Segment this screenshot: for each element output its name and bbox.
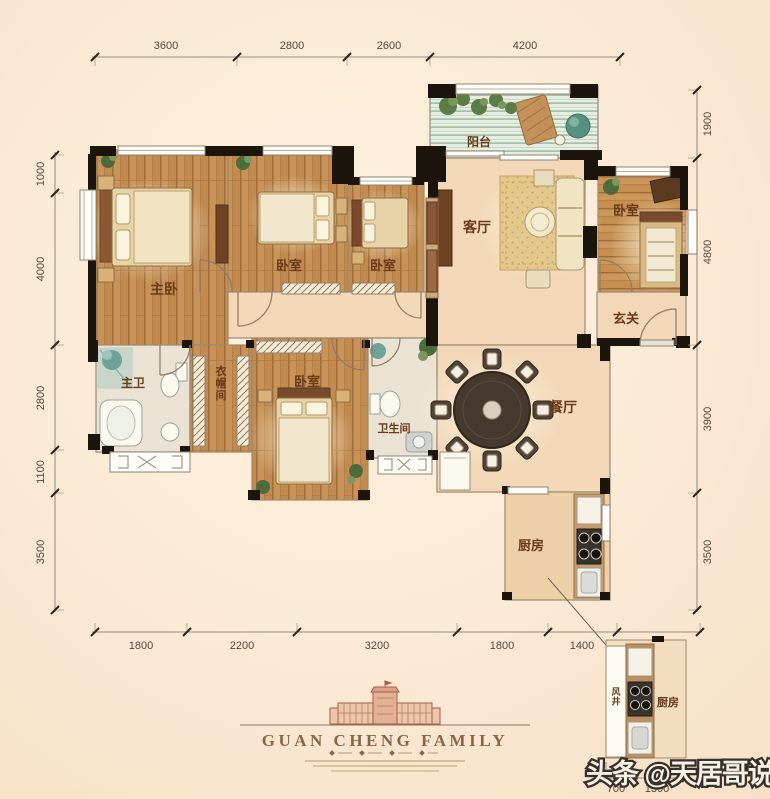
- tv-cabinet: [438, 190, 452, 266]
- dim-right-0: 1900: [702, 112, 714, 136]
- entry-threshold: [640, 340, 674, 346]
- dim-bottom-4: 1400: [570, 640, 594, 652]
- ottoman: [526, 270, 550, 288]
- bay-window: [80, 190, 96, 260]
- dresser: [216, 205, 228, 263]
- floor-plan-page: 主卧 卧室 卧室 卧室 卧室 客厅 餐厅 厨房 阳台 主卫 卫生间 玄关 衣帽间…: [0, 0, 770, 799]
- sofa: [556, 178, 584, 270]
- kitchen-threshold: [508, 487, 548, 494]
- dim-bottom-1: 2200: [230, 640, 254, 652]
- label-living: 客厅: [462, 219, 491, 235]
- window: [602, 505, 610, 541]
- label-master-bedroom: 主卧: [150, 281, 178, 297]
- dim-top-2: 2600: [377, 40, 401, 52]
- dim-bottom-2: 3200: [365, 640, 389, 652]
- label-bedroom2: 卧室: [276, 258, 302, 273]
- label-bathroom: 卫生间: [378, 421, 411, 435]
- dim-top-3: 4200: [513, 40, 537, 52]
- wardrobe: [256, 341, 322, 353]
- toilet: [161, 373, 179, 397]
- closet-shelf: [237, 356, 249, 446]
- dim-top-0: 3600: [154, 40, 178, 52]
- sink: [161, 423, 179, 441]
- bay-window: [688, 210, 697, 254]
- label-foyer: 玄关: [613, 311, 639, 326]
- bed-headboard: [352, 200, 362, 246]
- dim-top-1: 2800: [280, 40, 304, 52]
- coffee-table: [525, 207, 555, 237]
- toilet: [380, 391, 400, 417]
- brand-name: GUAN CHENG FAMILY: [262, 731, 509, 750]
- watermark-text: 头条 @天居哥说房: [586, 759, 770, 789]
- closet-shelf: [193, 356, 205, 446]
- label-kitchen: 厨房: [518, 538, 544, 553]
- label-bedroom-right: 卧室: [613, 203, 639, 218]
- balcony-slider: [500, 155, 558, 160]
- dim-right-2: 3900: [702, 407, 714, 431]
- planter: [566, 114, 590, 138]
- inset-label-air-shaft: 风井: [611, 687, 620, 707]
- label-balcony: 阳台: [467, 134, 491, 149]
- dim-left-2: 2800: [35, 386, 47, 410]
- building-illustration: [330, 681, 440, 724]
- window-column: [426, 198, 438, 298]
- floor-plan-canvas: 主卧 卧室 卧室 卧室 卧室 客厅 餐厅 厨房 阳台 主卫 卫生间 玄关 衣帽间…: [0, 0, 770, 799]
- dim-bottom-3: 1800: [490, 640, 514, 652]
- foyer-floor: [597, 292, 686, 345]
- label-bedroom4: 卧室: [294, 374, 320, 389]
- bed-headboard: [278, 388, 330, 398]
- dim-left-0: 1000: [35, 162, 47, 186]
- inset-label-kitchen: 厨房: [657, 695, 679, 709]
- label-bedroom3: 卧室: [370, 258, 396, 273]
- dim-bottom-0: 1800: [129, 640, 153, 652]
- brand-tagline-decor: [305, 750, 465, 772]
- dim-left-3: 1100: [35, 460, 47, 484]
- bed-headboard: [640, 212, 682, 222]
- dim-left-4: 3500: [35, 540, 47, 564]
- footer-logo: GUAN CHENG FAMILY: [240, 681, 530, 772]
- corridor-floor: [228, 292, 437, 338]
- balcony-slider: [446, 151, 504, 156]
- bed-headboard: [100, 190, 112, 262]
- dim-right-3: 3500: [702, 540, 714, 564]
- bedroom2-furniture: [258, 192, 347, 244]
- label-closet: 衣帽间: [216, 364, 228, 402]
- dim-right-1: 4800: [702, 240, 714, 264]
- label-dining: 餐厅: [548, 399, 577, 415]
- kitchen-furniture: [574, 494, 604, 598]
- label-master-bath: 主卫: [121, 375, 145, 390]
- dim-left-1: 4000: [35, 257, 47, 281]
